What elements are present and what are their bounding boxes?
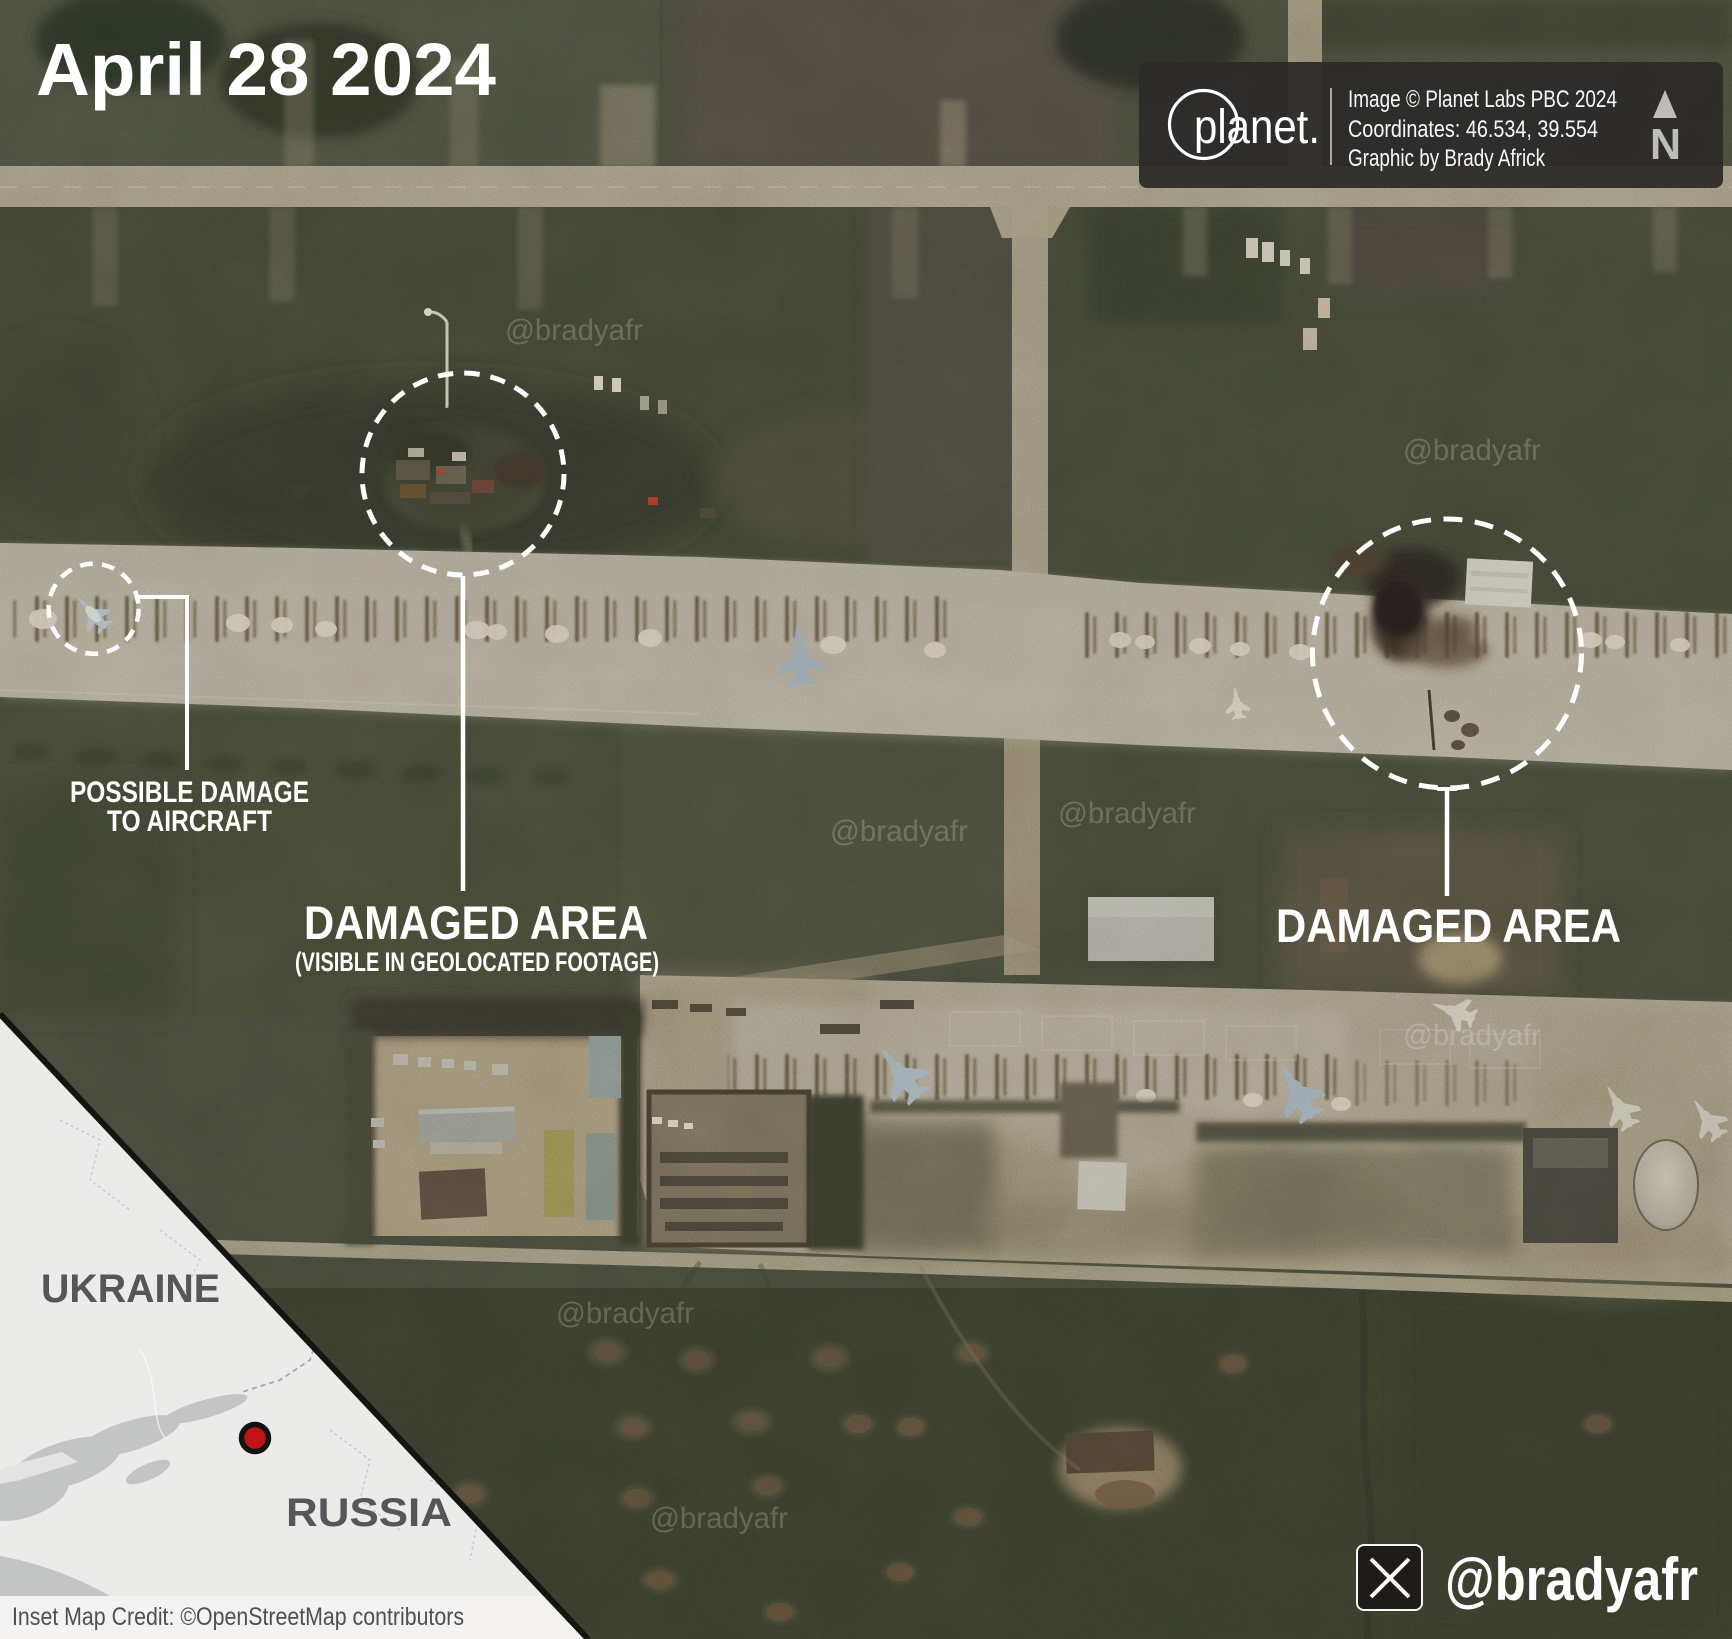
svg-text:planet.: planet. xyxy=(1194,101,1320,154)
svg-text:N: N xyxy=(1650,120,1681,169)
svg-text:Coordinates: 46.534, 39.554: Coordinates: 46.534, 39.554 xyxy=(1348,116,1598,143)
svg-text:@bradyafr: @bradyafr xyxy=(1403,1019,1541,1052)
svg-text:April 28 2024: April 28 2024 xyxy=(36,28,496,111)
svg-text:TO AIRCRAFT: TO AIRCRAFT xyxy=(107,805,272,838)
svg-text:Inset Map Credit: ©OpenStreetM: Inset Map Credit: ©OpenStreetMap contrib… xyxy=(12,1603,464,1631)
svg-text:@bradyafr: @bradyafr xyxy=(1403,434,1541,467)
svg-text:Image © Planet Labs PBC 2024: Image © Planet Labs PBC 2024 xyxy=(1348,86,1617,113)
svg-text:@bradyafr: @bradyafr xyxy=(556,1297,694,1330)
svg-text:UKRAINE: UKRAINE xyxy=(41,1267,220,1311)
svg-text:DAMAGED AREA: DAMAGED AREA xyxy=(1276,899,1621,952)
svg-text:Graphic by Brady Africk: Graphic by Brady Africk xyxy=(1348,145,1546,172)
svg-text:@bradyafr: @bradyafr xyxy=(830,815,968,848)
svg-text:(VISIBLE IN GEOLOCATED FOOTAGE: (VISIBLE IN GEOLOCATED FOOTAGE) xyxy=(295,947,659,977)
svg-text:@bradyafr: @bradyafr xyxy=(1058,797,1196,830)
svg-text:@bradyafr: @bradyafr xyxy=(505,314,643,347)
svg-text:DAMAGED AREA: DAMAGED AREA xyxy=(304,896,648,949)
svg-text:@bradyafr: @bradyafr xyxy=(1445,1546,1698,1613)
svg-text:@bradyafr: @bradyafr xyxy=(650,1502,788,1535)
svg-text:RUSSIA: RUSSIA xyxy=(286,1491,452,1535)
